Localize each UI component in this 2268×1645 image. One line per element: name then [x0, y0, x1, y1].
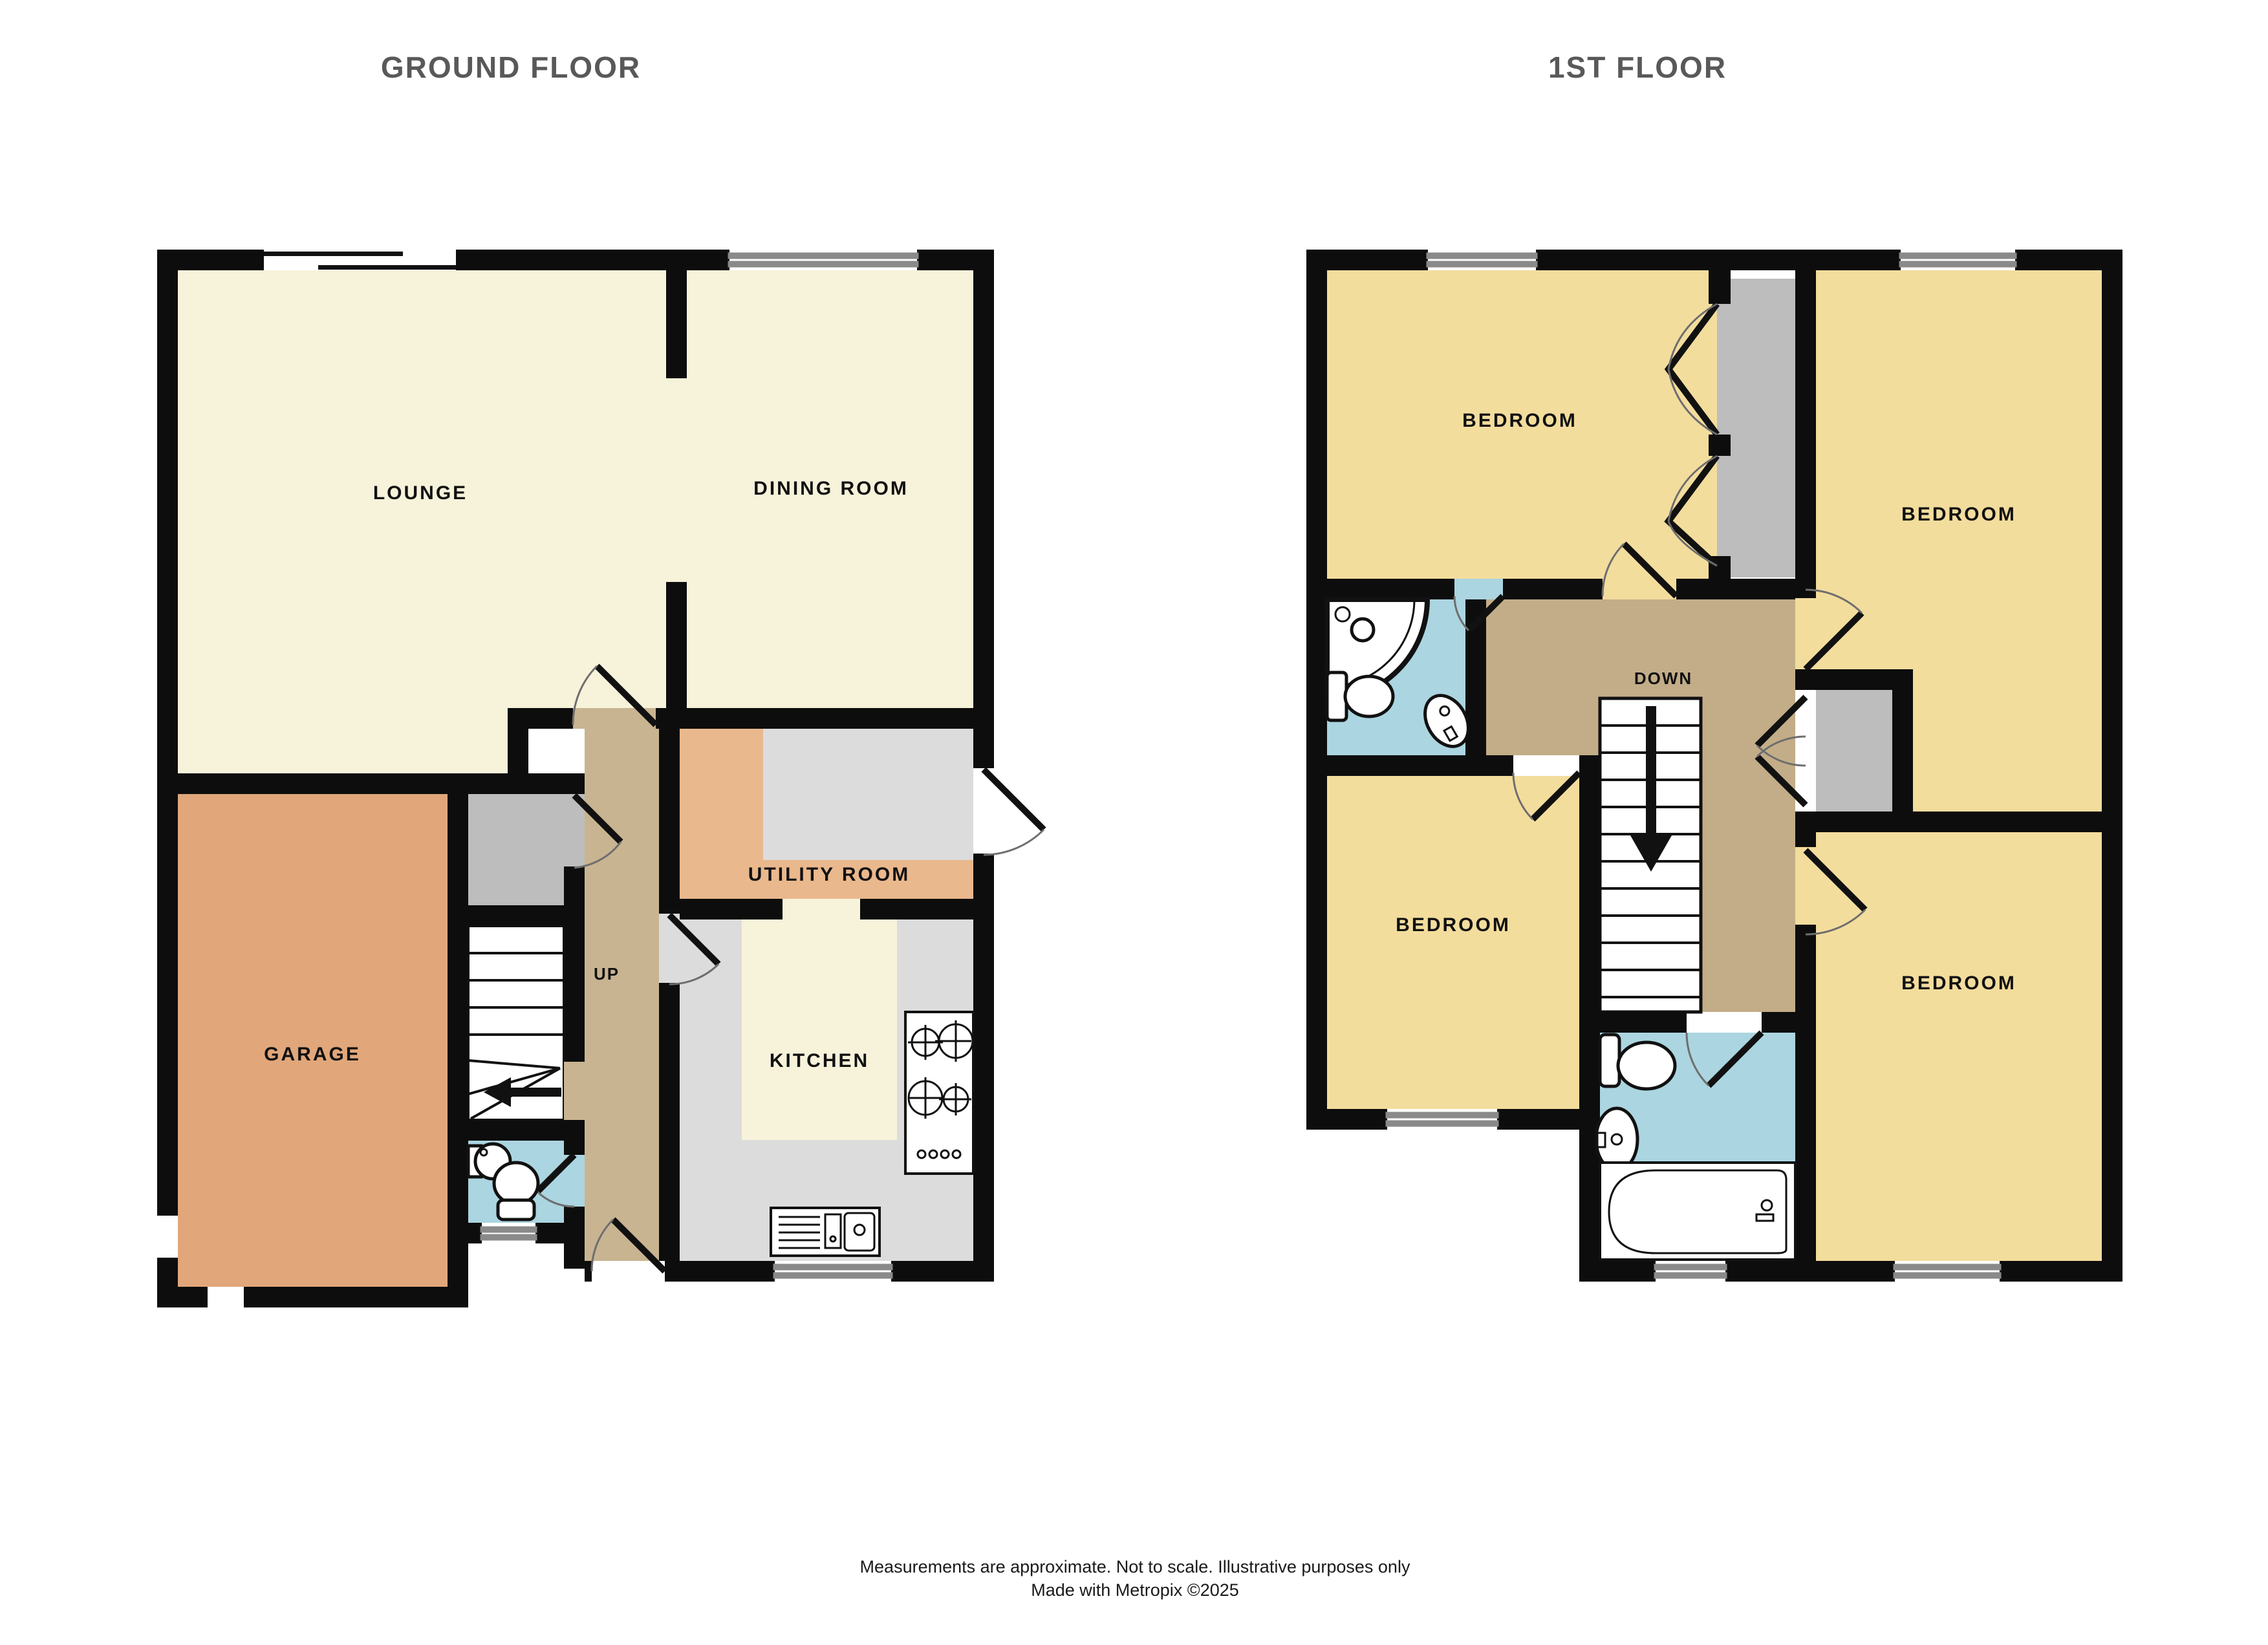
up-arrow-shaft — [510, 1088, 561, 1097]
window-line — [775, 1274, 891, 1277]
footer-disclaimer: Measurements are approximate. Not to sca… — [860, 1557, 1410, 1576]
wall — [1795, 812, 1913, 832]
window-line — [1428, 263, 1536, 266]
window-line — [1428, 254, 1536, 257]
room-garage — [178, 794, 448, 1287]
cupboard-gf — [468, 794, 564, 905]
label-bedroom-4: BEDROOM — [1901, 973, 2016, 994]
wall — [1913, 812, 2102, 832]
down-arrow-shaft — [1646, 706, 1656, 835]
hallway — [585, 729, 659, 1261]
window-line — [1656, 1274, 1725, 1277]
stairs-opening — [564, 1062, 585, 1120]
window-line — [1895, 1265, 2000, 1269]
toilet-bowl — [494, 1163, 538, 1204]
window-line — [1901, 263, 2015, 266]
patio-door-line — [264, 252, 403, 256]
wall — [973, 250, 994, 1282]
label-up: UP — [594, 964, 620, 984]
label-bedroom-3: BEDROOM — [1396, 914, 1511, 936]
cupboard-1f — [1816, 690, 1892, 812]
wall — [659, 729, 680, 1269]
label-bedroom-1: BEDROOM — [1462, 410, 1577, 431]
kitchen-floor — [742, 919, 897, 1140]
room-bedroom-3 — [1327, 776, 1579, 1109]
floorplan-canvas: GROUND FLOOR 1ST FLOOR LOUNGE DINING ROO… — [0, 0, 2268, 1645]
room-bedroom-4 — [1816, 832, 2102, 1261]
wall — [1795, 270, 1816, 599]
window-line — [482, 1236, 535, 1239]
wall — [1795, 925, 1816, 1282]
door-gap-shower — [1454, 579, 1503, 599]
window-line — [1895, 1274, 2000, 1277]
utility-counter — [763, 729, 973, 860]
window-line — [1901, 254, 2015, 257]
wall — [157, 1287, 468, 1307]
label-lounge: LOUNGE — [373, 482, 468, 504]
wall — [1306, 250, 1327, 1130]
wall — [468, 905, 564, 926]
patio-door-line — [318, 265, 456, 270]
room-lounge-lower — [178, 708, 508, 773]
window-line — [1387, 1113, 1497, 1117]
window-line — [1387, 1122, 1497, 1125]
footer-credit: Made with Metropix ©2025 — [1031, 1580, 1239, 1600]
garage-door-gap — [208, 1287, 244, 1307]
shower-head — [1352, 619, 1374, 641]
label-dining: DINING ROOM — [753, 478, 909, 499]
toilet-bowl — [1618, 1042, 1675, 1089]
toilet-base — [498, 1200, 534, 1220]
toilet-tank — [1600, 1035, 1619, 1086]
wall-stub — [1795, 832, 1816, 847]
wall — [468, 1120, 564, 1141]
label-down: DOWN — [1634, 669, 1692, 688]
window-line — [775, 1265, 891, 1269]
label-garage: GARAGE — [264, 1044, 361, 1065]
wall — [1762, 1012, 1816, 1033]
basin — [1596, 1108, 1637, 1170]
wall — [666, 708, 994, 729]
wall — [1579, 1012, 1687, 1033]
label-kitchen: KITCHEN — [770, 1050, 869, 1071]
wall-stub — [1709, 270, 1731, 304]
window-line — [729, 254, 917, 257]
wall — [2102, 250, 2122, 1282]
wall — [666, 582, 687, 729]
first-floor-title: 1ST FLOOR — [1548, 50, 1727, 84]
wall — [1892, 669, 1913, 832]
label-bedroom-2: BEDROOM — [1901, 504, 2016, 525]
wall — [508, 708, 573, 729]
wall — [666, 250, 687, 378]
toilet-bowl — [1345, 676, 1393, 716]
door-gap-utility-kitchen — [783, 899, 860, 919]
wall — [1306, 755, 1513, 776]
wall-stub — [1709, 435, 1731, 456]
wall — [1306, 579, 1816, 599]
garage-side-door-gap — [157, 1216, 178, 1258]
ground-floor-title: GROUND FLOOR — [381, 50, 641, 84]
label-utility: UTILITY ROOM — [748, 864, 910, 885]
wall — [508, 729, 528, 794]
window-line — [482, 1228, 535, 1231]
wardrobe — [1717, 279, 1795, 577]
window-line — [1656, 1265, 1725, 1269]
window-line — [729, 263, 917, 266]
